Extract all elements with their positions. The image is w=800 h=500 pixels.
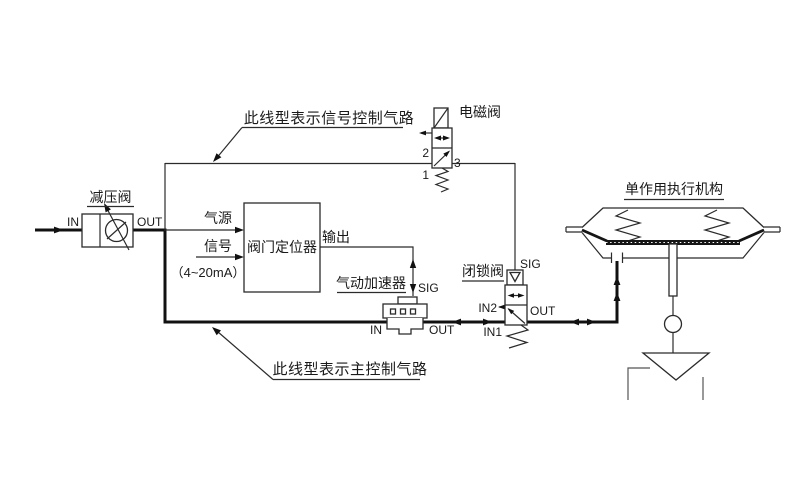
actuator-label: 单作用执行机构 <box>625 181 723 197</box>
lockup-in2-label: IN2 <box>478 301 497 315</box>
booster-label: 气动加速器 <box>336 275 406 291</box>
flow-arrow-right <box>235 227 244 233</box>
actuator-stem <box>669 244 677 296</box>
lockup-out-label: OUT <box>530 304 556 318</box>
actuator-symbol: 单作用执行机构 <box>566 181 780 400</box>
signal-range-label: （4~20mA） <box>171 265 246 280</box>
lockup-spring <box>507 325 528 348</box>
solenoid-spring <box>436 168 448 192</box>
lockup-in2-arrowhead <box>498 305 505 310</box>
booster-lower-body <box>387 318 423 334</box>
solenoid-port3-label: 3 <box>454 156 461 170</box>
lockup-label: 闭锁阀 <box>462 263 504 279</box>
flow-arrow-up <box>614 276 621 285</box>
flow-arrow-right <box>54 227 64 234</box>
flow-arrow-down <box>410 284 416 293</box>
regulator-label: 减压阀 <box>90 189 132 205</box>
regulator-symbol: IN OUT 减压阀 <box>67 189 163 250</box>
solenoid-valve-symbol: 2 3 1 电磁阀 <box>419 104 501 192</box>
flow-arrow-up <box>614 292 621 301</box>
booster-sig-label: SIG <box>418 281 439 295</box>
note-leader-line <box>215 128 242 161</box>
solenoid-exhaust-arrowhead <box>419 131 426 136</box>
flow-arrow-right <box>235 254 244 260</box>
note-main-line: 此线型表示主控制气路 <box>212 327 428 380</box>
booster-in-label: IN <box>370 323 382 337</box>
solenoid-port1-label: 1 <box>422 168 429 182</box>
booster-out-label: OUT <box>429 323 455 337</box>
lockup-valve-symbol: SIG IN2 OUT IN1 闭锁阀 <box>462 257 556 348</box>
signal-label: 信号 <box>204 238 232 254</box>
flow-arrow-right <box>587 319 596 326</box>
valve-plug-triangle <box>643 353 709 380</box>
solenoid-label: 电磁阀 <box>459 104 501 120</box>
schematic-canvas: 此线型表示信号控制气路 此线型表示主控制气路 IN OUT 减压阀 阀门定位器 … <box>0 0 800 500</box>
signal-line-note-text: 此线型表示信号控制气路 <box>244 110 415 127</box>
flow-arrow-up <box>410 259 416 268</box>
lockup-in1-label: IN1 <box>483 325 502 339</box>
positioner-label: 阀门定位器 <box>247 239 317 255</box>
regulator-in-label: IN <box>67 215 79 229</box>
solenoid-port2-label: 2 <box>422 146 429 160</box>
actuator-diaphragm-edge-right <box>739 230 764 241</box>
lockup-sig-label: SIG <box>520 257 541 271</box>
stem-connector-circle <box>665 316 682 333</box>
main-line-note-text: 此线型表示主控制气路 <box>272 361 427 378</box>
output-label: 输出 <box>322 229 350 245</box>
booster-symbol: SIG IN OUT 气动加速器 <box>336 275 455 337</box>
booster-sig-port <box>398 297 417 304</box>
regulator-out-label: OUT <box>137 215 163 229</box>
actuator-diaphragm-edge-left <box>582 230 607 241</box>
actuator-right-tab <box>764 227 780 232</box>
note-signal-line: 此线型表示信号控制气路 <box>213 110 414 162</box>
actuator-upper-case <box>582 208 764 228</box>
valve-body-bracket-left <box>628 368 650 400</box>
actuator-left-tab <box>566 227 582 232</box>
air-supply-label: 气源 <box>204 210 232 226</box>
solenoid-coil-diagonal <box>434 108 448 128</box>
flow-arrow-left <box>570 319 579 326</box>
note-leader-line <box>214 329 273 380</box>
pneumatic-diagram: 此线型表示信号控制气路 此线型表示主控制气路 IN OUT 减压阀 阀门定位器 … <box>0 0 800 500</box>
